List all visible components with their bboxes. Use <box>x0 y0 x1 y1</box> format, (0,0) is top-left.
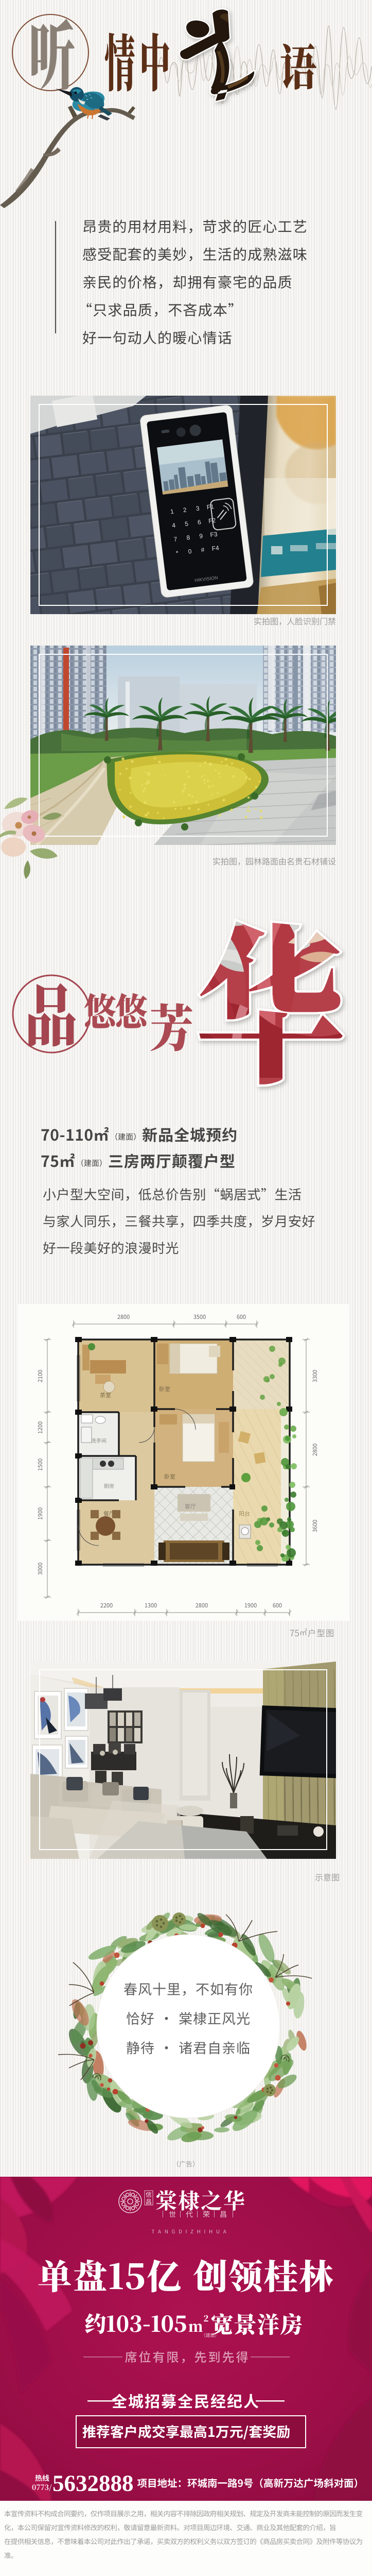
svg-text:F4: F4 <box>211 544 220 552</box>
svg-text:F3: F3 <box>210 531 218 539</box>
